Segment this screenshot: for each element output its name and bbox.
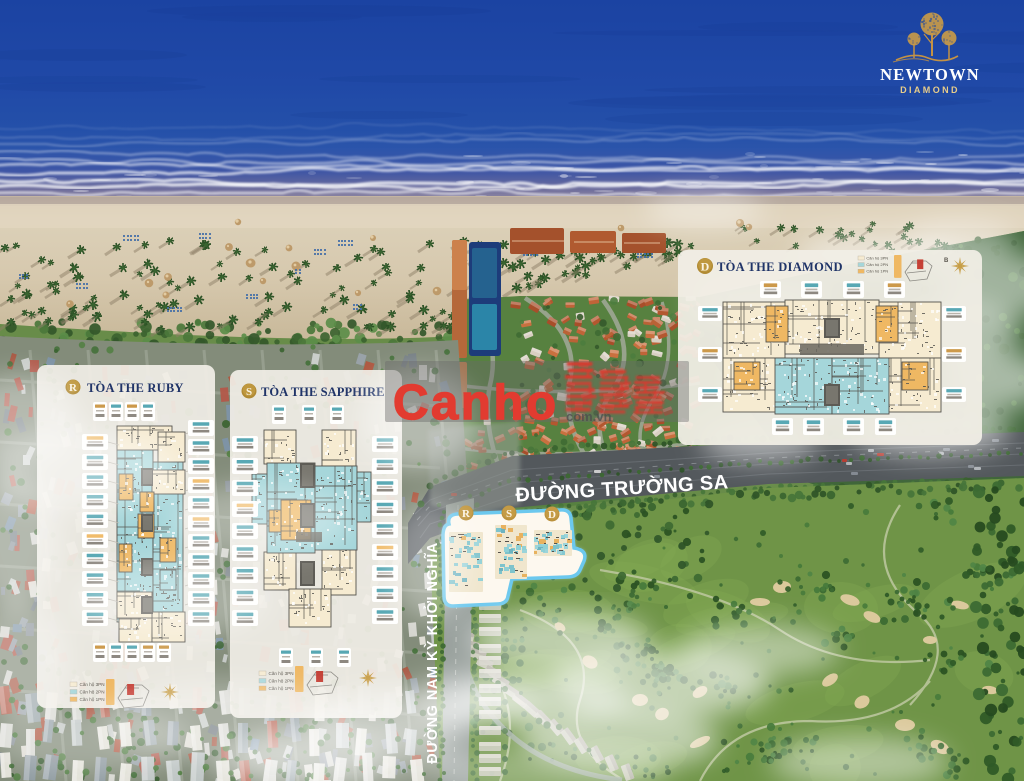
svg-text:Căn hộ 3PN: Căn hộ 3PN xyxy=(269,671,294,676)
svg-text:Căn hộ 2PN: Căn hộ 2PN xyxy=(80,690,105,695)
svg-text:Căn hộ 2PN: Căn hộ 2PN xyxy=(269,679,294,684)
svg-text:Canho: Canho xyxy=(393,376,556,430)
svg-text:Căn hộ 1PN: Căn hộ 1PN xyxy=(866,269,888,274)
svg-text:S: S xyxy=(506,508,512,520)
svg-text:D: D xyxy=(548,509,556,521)
svg-text:D: D xyxy=(701,259,710,273)
svg-text:Căn hộ 3PN: Căn hộ 3PN xyxy=(866,256,888,261)
svg-text:TÒA THE DIAMOND: TÒA THE DIAMOND xyxy=(717,260,843,274)
svg-text:B: B xyxy=(944,258,949,264)
svg-text:Căn hộ 1PN: Căn hộ 1PN xyxy=(80,697,105,702)
svg-text:DIAMOND: DIAMOND xyxy=(900,85,960,95)
svg-text:Căn hộ 3PN: Căn hộ 3PN xyxy=(80,682,105,687)
svg-text:TÒA THE SAPPHIRE: TÒA THE SAPPHIRE xyxy=(261,385,385,399)
svg-text:TÒA THE RUBY: TÒA THE RUBY xyxy=(87,381,184,395)
svg-text:Căn hộ 2PN: Căn hộ 2PN xyxy=(866,262,888,267)
svg-text:S: S xyxy=(246,386,252,398)
svg-text:NEWTOWN: NEWTOWN xyxy=(880,65,980,84)
svg-text:com.vn: com.vn xyxy=(566,409,612,424)
svg-text:R: R xyxy=(69,382,78,394)
svg-text:R: R xyxy=(462,508,471,520)
